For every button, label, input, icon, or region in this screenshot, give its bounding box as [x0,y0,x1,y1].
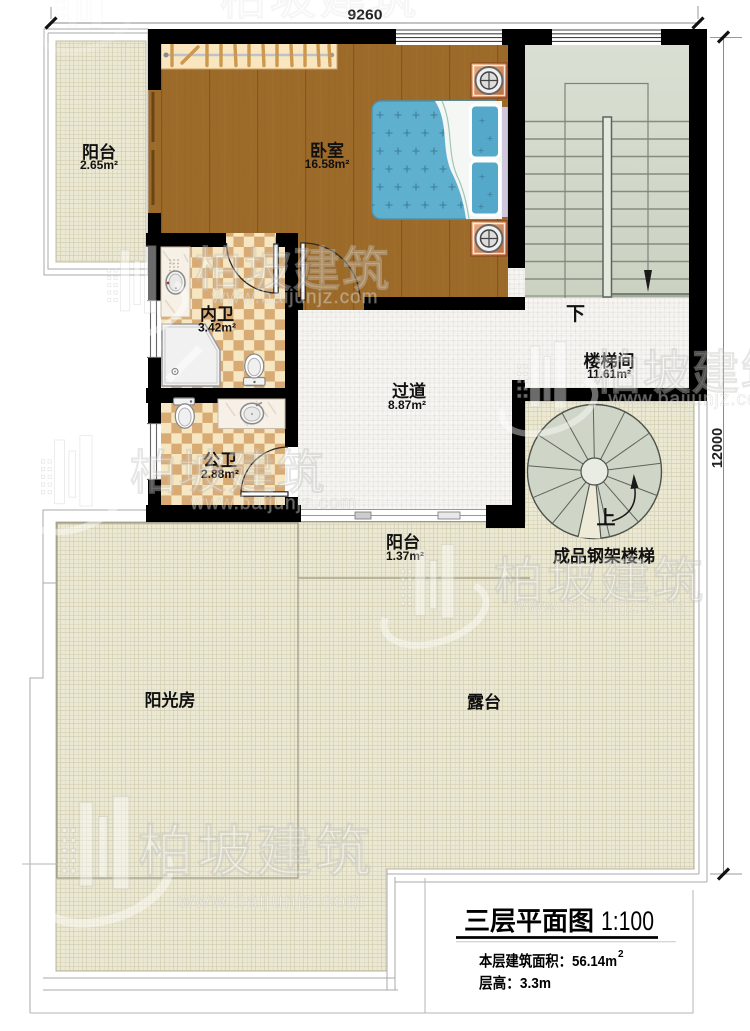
svg-text:柏坡建筑: 柏坡建筑 [130,446,326,499]
svg-text:下: 下 [566,304,585,325]
svg-text:1:100: 1:100 [601,906,654,936]
svg-text:www.baijunjz.com: www.baijunjz.com [608,389,750,410]
svg-text:www.baijunjz.com: www.baijunjz.com [190,493,358,514]
svg-text:露台: 露台 [467,692,501,712]
svg-text:8.87m²: 8.87m² [388,398,426,412]
svg-text:上: 上 [596,507,615,529]
svg-text:2.65m²: 2.65m² [80,158,118,172]
svg-text:www.baijunjz.com: www.baijunjz.com [211,287,379,308]
svg-text:柏坡建筑: 柏坡建筑 [138,820,374,883]
svg-text:3.42m²: 3.42m² [198,321,236,335]
svg-text:www.baijunjz.com: www.baijunjz.com [512,596,688,617]
svg-text:三层平面图: 三层平面图 [464,906,594,936]
svg-text:阳光房: 阳光房 [145,690,196,710]
svg-text:柏坡建筑: 柏坡建筑 [220,0,420,24]
svg-text:2: 2 [618,949,624,960]
svg-text:16.58m²: 16.58m² [305,157,350,171]
svg-text:本层建筑面积：56.14m: 本层建筑面积：56.14m [479,952,617,970]
svg-text:12000: 12000 [710,428,726,468]
svg-text:www.baijunjz.com: www.baijunjz.com [178,889,366,912]
svg-text:层高：3.3m: 层高：3.3m [479,974,551,992]
